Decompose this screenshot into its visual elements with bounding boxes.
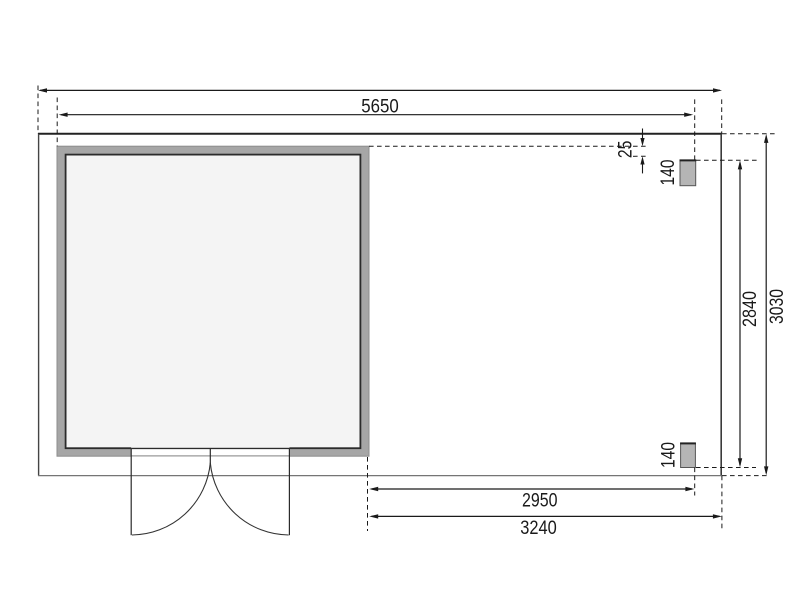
svg-text:140: 140 (658, 442, 679, 468)
svg-text:3030: 3030 (767, 289, 788, 324)
svg-text:2950: 2950 (522, 491, 558, 512)
svg-text:25: 25 (615, 141, 636, 159)
svg-text:140: 140 (658, 160, 679, 186)
svg-text:3240: 3240 (520, 518, 557, 539)
svg-text:2840: 2840 (740, 291, 761, 327)
svg-text:5650: 5650 (361, 96, 399, 117)
